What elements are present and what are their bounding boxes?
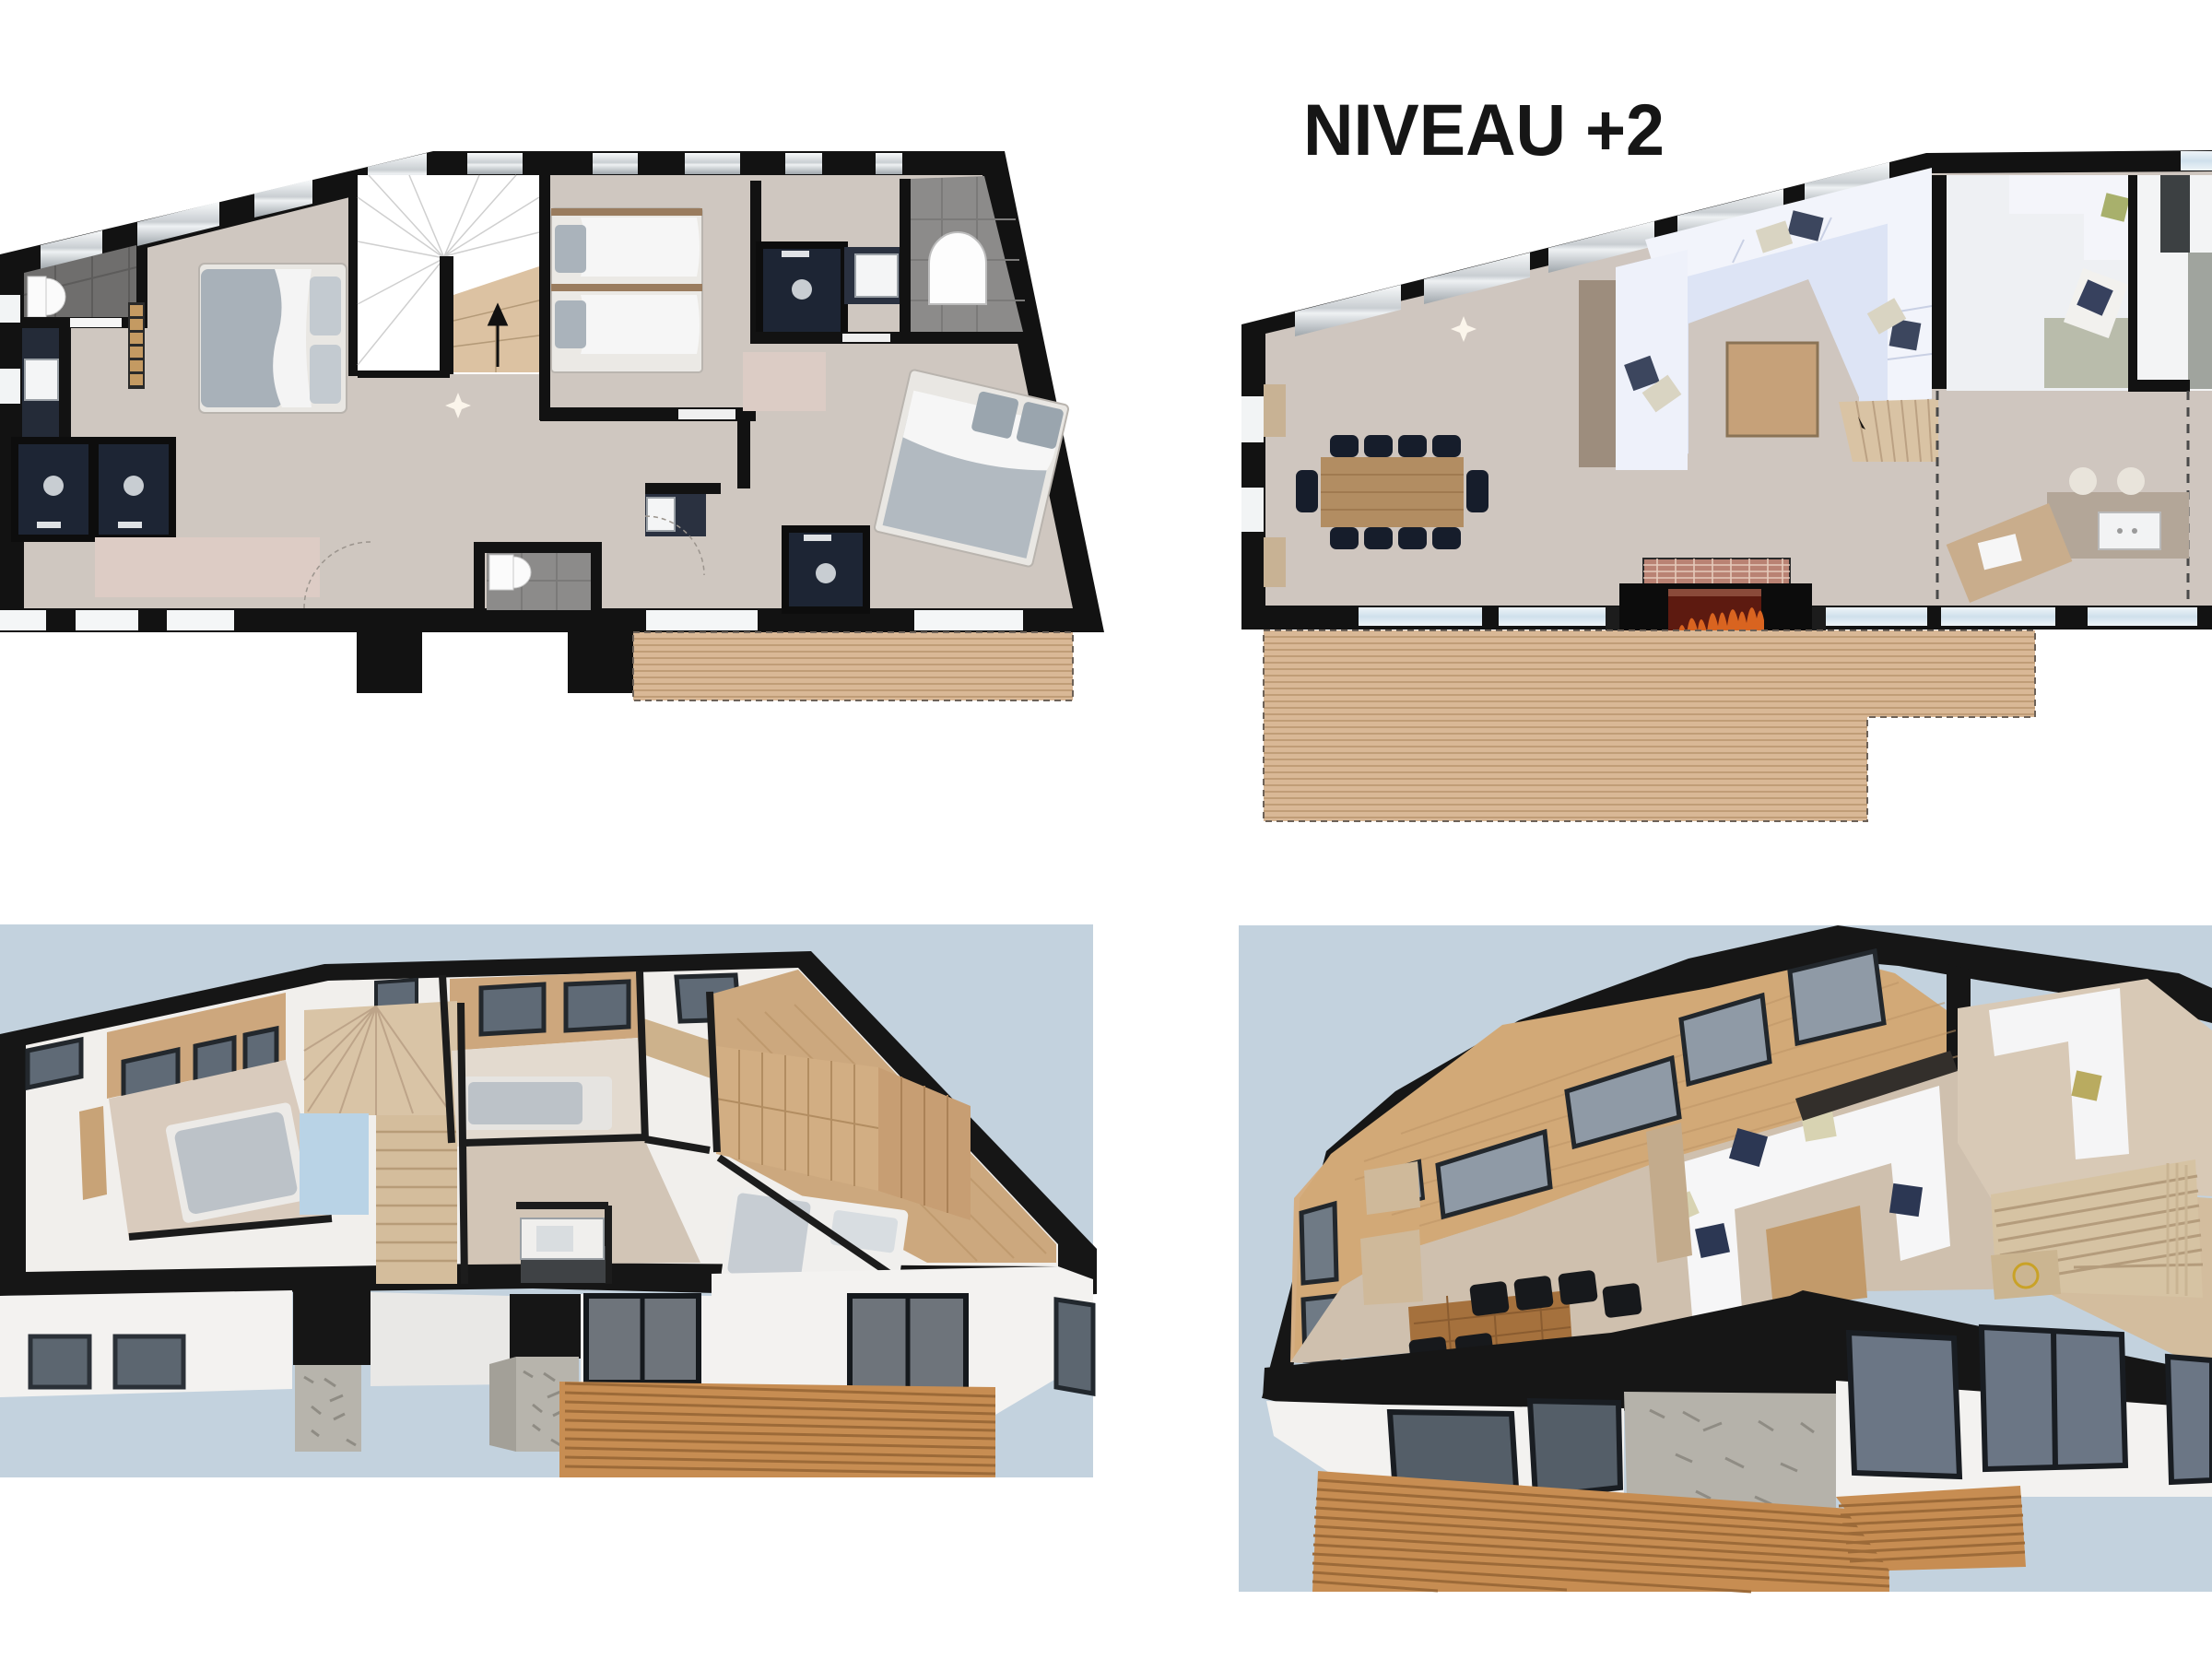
svg-text:NIVEAU +2: NIVEAU +2: [1303, 88, 1665, 171]
